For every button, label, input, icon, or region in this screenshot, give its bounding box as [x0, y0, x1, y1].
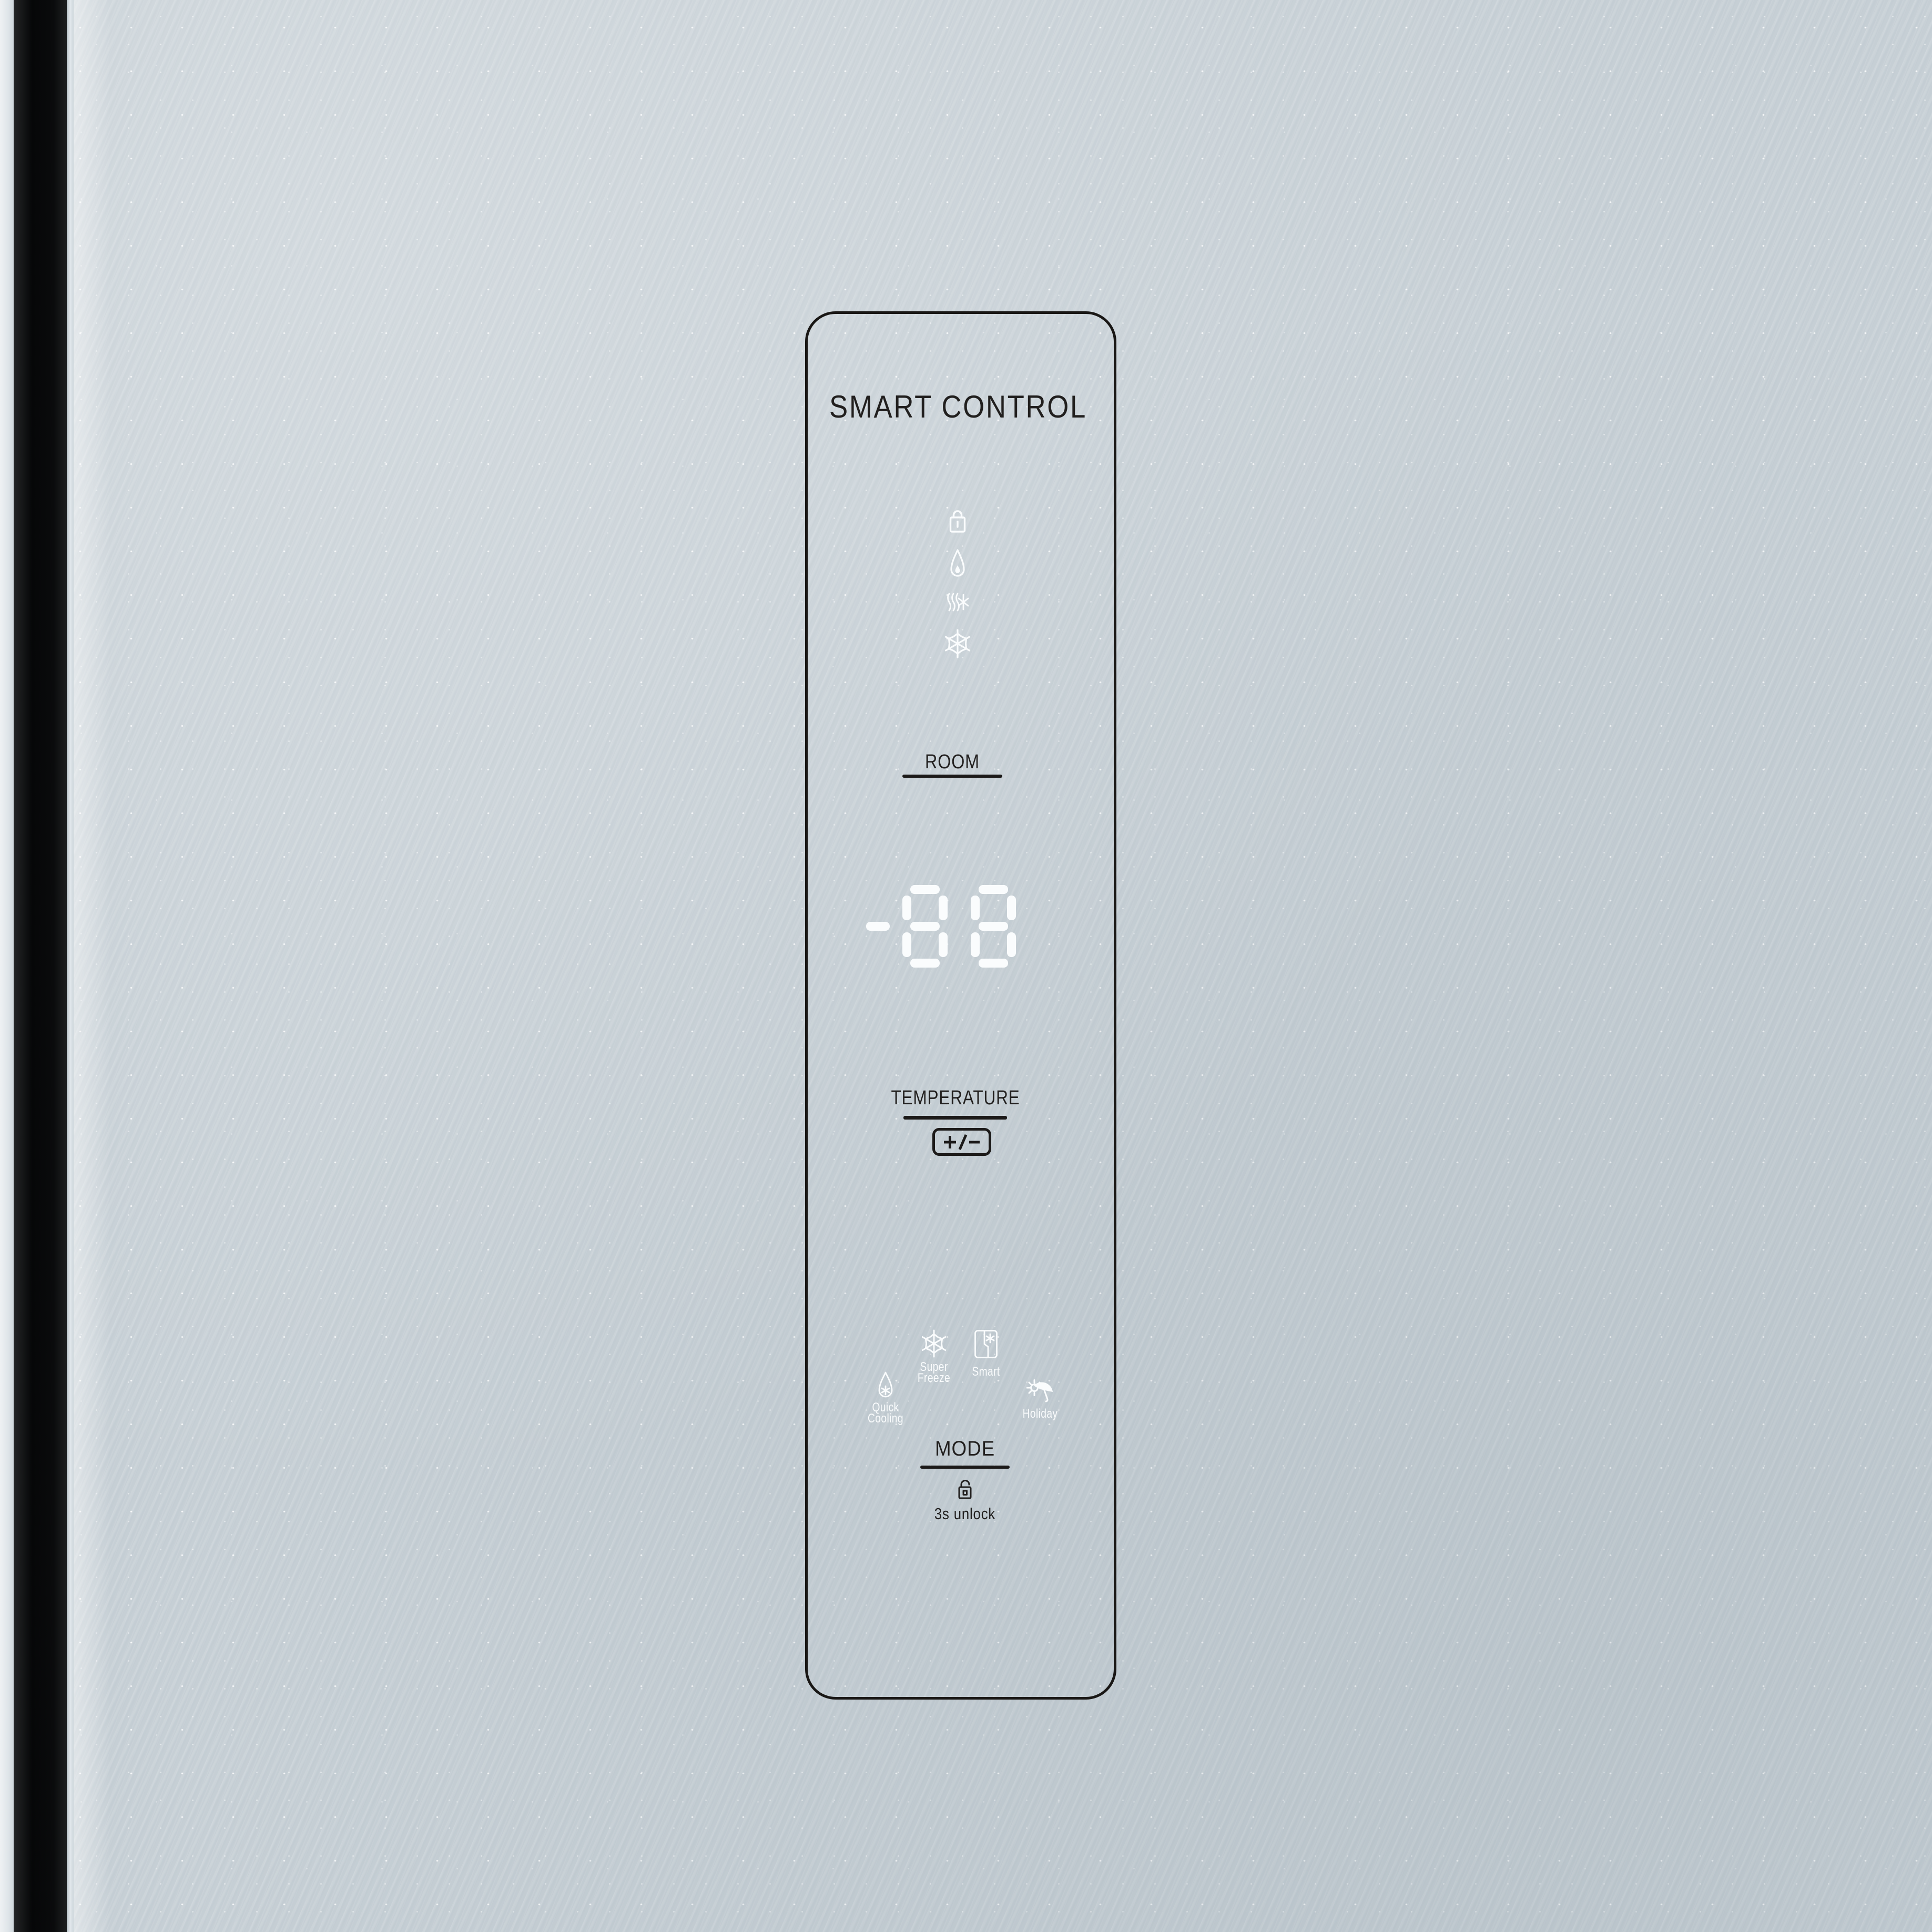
temperature-plus-minus-button[interactable] [932, 1128, 991, 1156]
smart-mode-label: Smart [972, 1366, 1000, 1377]
room-underline [902, 775, 1002, 778]
water-drop-icon [950, 548, 965, 583]
holiday-label: Holiday [1023, 1408, 1058, 1419]
unlock-icon[interactable] [957, 1478, 973, 1503]
temperature-label: TEMPERATURE [891, 1088, 1020, 1108]
door-edge-line [67, 0, 74, 1932]
smart-control-panel: SMART CONTROL [805, 311, 1116, 1700]
display-digit-8 [971, 885, 1016, 968]
super-freeze-icon [922, 1329, 946, 1361]
plus-minus-icon [943, 1133, 981, 1151]
defrost-icon [945, 591, 970, 616]
door-hinge-gap [14, 0, 67, 1932]
panel-title: SMART CONTROL [829, 391, 1087, 423]
snowflake-icon [944, 628, 971, 662]
quick-cooling-label: Quick Cooling [868, 1402, 903, 1424]
temperature-display-value: -88 [866, 885, 867, 886]
door-edge-sheen [74, 0, 110, 1932]
smart-mode-icon [974, 1329, 998, 1361]
mode-underline [920, 1466, 1010, 1469]
unlock-hint-label: 3s unlock [934, 1506, 995, 1522]
temperature-display: -88 [866, 885, 1016, 968]
mode-key[interactable]: MODE [935, 1438, 995, 1459]
room-key[interactable]: ROOM [925, 752, 980, 772]
super-freeze-label: Super Freeze [918, 1361, 950, 1384]
display-minus-segment [866, 922, 890, 931]
temperature-underline [903, 1116, 1007, 1120]
display-digit-8 [902, 885, 948, 968]
holiday-icon [1026, 1378, 1054, 1406]
quick-cooling-icon [878, 1371, 893, 1403]
lock-icon [949, 506, 967, 537]
fridge-door-photo: SMART CONTROL [0, 0, 1932, 1932]
door-edge-highlight [0, 0, 14, 1932]
